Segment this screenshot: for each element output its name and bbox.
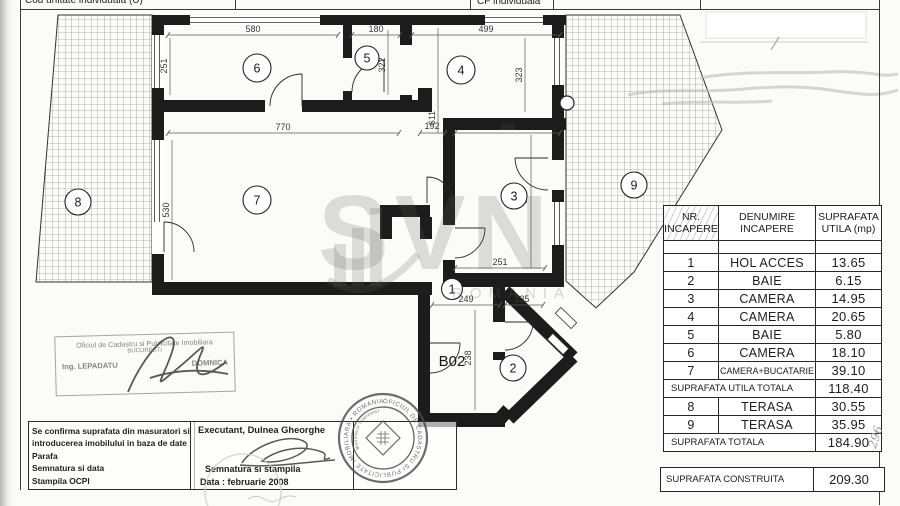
ocpi-round-stamp: OFICIUL DE CADASTRU SI PUBLICITATE IMOBI… [0,0,427,482]
signature-executant [240,439,335,466]
signature-lepadatu [128,337,228,392]
scanned-floorplan-page: { "header": { "col1": "Cod unitate indiv… [0,0,900,506]
svg-text:OFICIUL DE CADASTRU SI PUBLICI: OFICIUL DE CADASTRU SI PUBLICITATE IMOBI… [0,0,423,478]
stamps-and-signatures: OFICIUL DE CADASTRU SI PUBLICITATE IMOBI… [0,0,900,506]
pencil-scribble [248,496,296,502]
stamp-emblem [366,421,400,455]
